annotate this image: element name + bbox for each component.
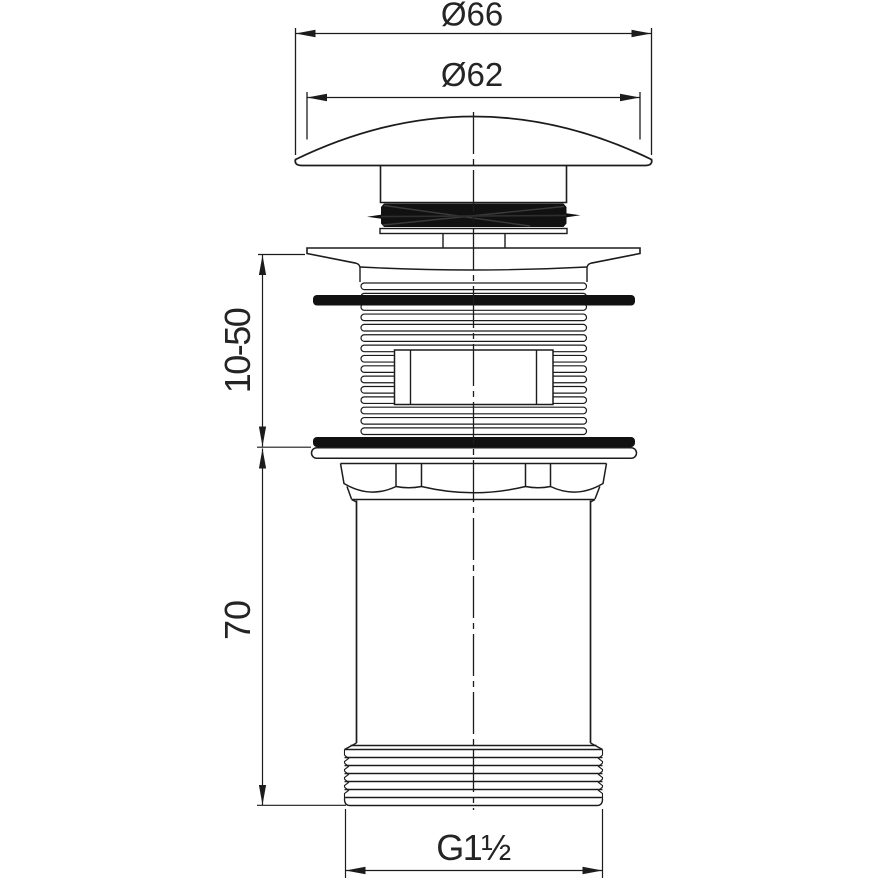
svg-text:Ø66: Ø66 — [441, 0, 503, 33]
svg-text:10-50: 10-50 — [217, 308, 258, 393]
svg-text:70: 70 — [217, 600, 258, 640]
svg-text:G1½: G1½ — [436, 827, 511, 868]
svg-text:Ø62: Ø62 — [441, 56, 503, 93]
